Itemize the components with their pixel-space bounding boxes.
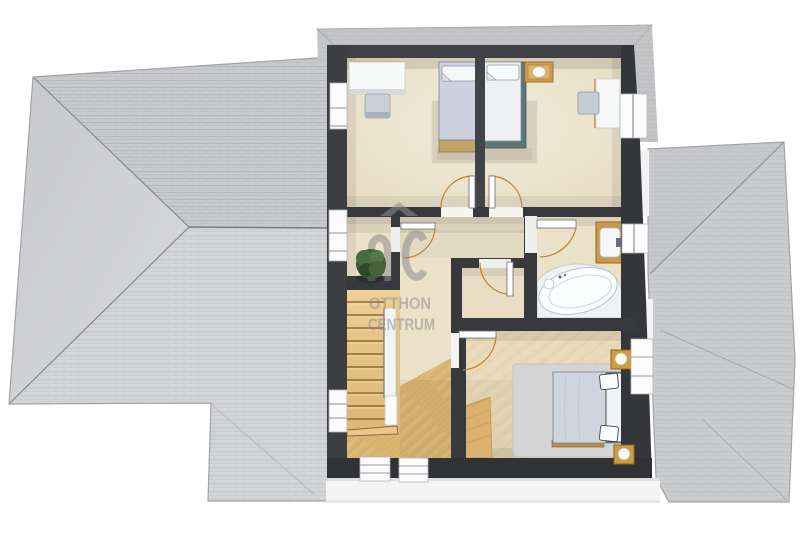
- svg-text:CENTRUM: CENTRUM: [368, 315, 435, 334]
- svg-text:OTTHON: OTTHON: [369, 294, 431, 313]
